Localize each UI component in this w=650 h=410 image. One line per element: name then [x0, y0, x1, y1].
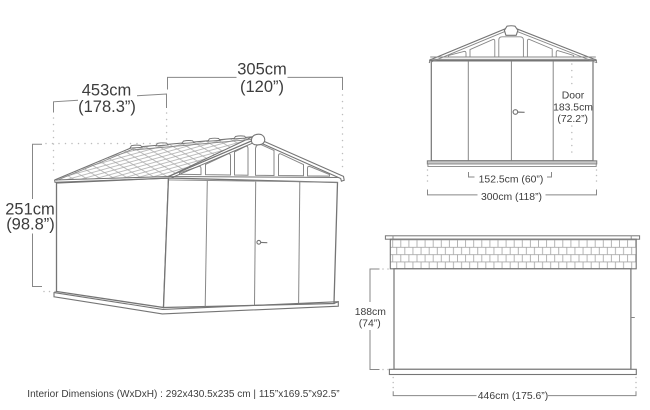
- svg-text:300cm (118”): 300cm (118”): [481, 192, 542, 203]
- svg-text:446cm (175.6”): 446cm (175.6”): [478, 391, 548, 402]
- svg-text:(178.3”): (178.3”): [78, 98, 136, 116]
- svg-text:152.5cm (60”): 152.5cm (60”): [479, 175, 544, 186]
- svg-text:453cm: 453cm: [82, 82, 132, 100]
- svg-text:(72.2”): (72.2”): [557, 114, 588, 125]
- svg-text:(74”): (74”): [359, 319, 381, 330]
- svg-text:Door: Door: [562, 91, 585, 102]
- svg-text:188cm: 188cm: [355, 307, 386, 318]
- svg-text:Interior Dimensions (WxDxH) :: Interior Dimensions (WxDxH) : 292x430.5x…: [27, 389, 339, 400]
- svg-text:183.5cm: 183.5cm: [553, 103, 593, 114]
- svg-text:(120”): (120”): [240, 78, 284, 96]
- svg-text:(98.8”): (98.8”): [6, 216, 55, 234]
- svg-text:305cm: 305cm: [237, 61, 287, 79]
